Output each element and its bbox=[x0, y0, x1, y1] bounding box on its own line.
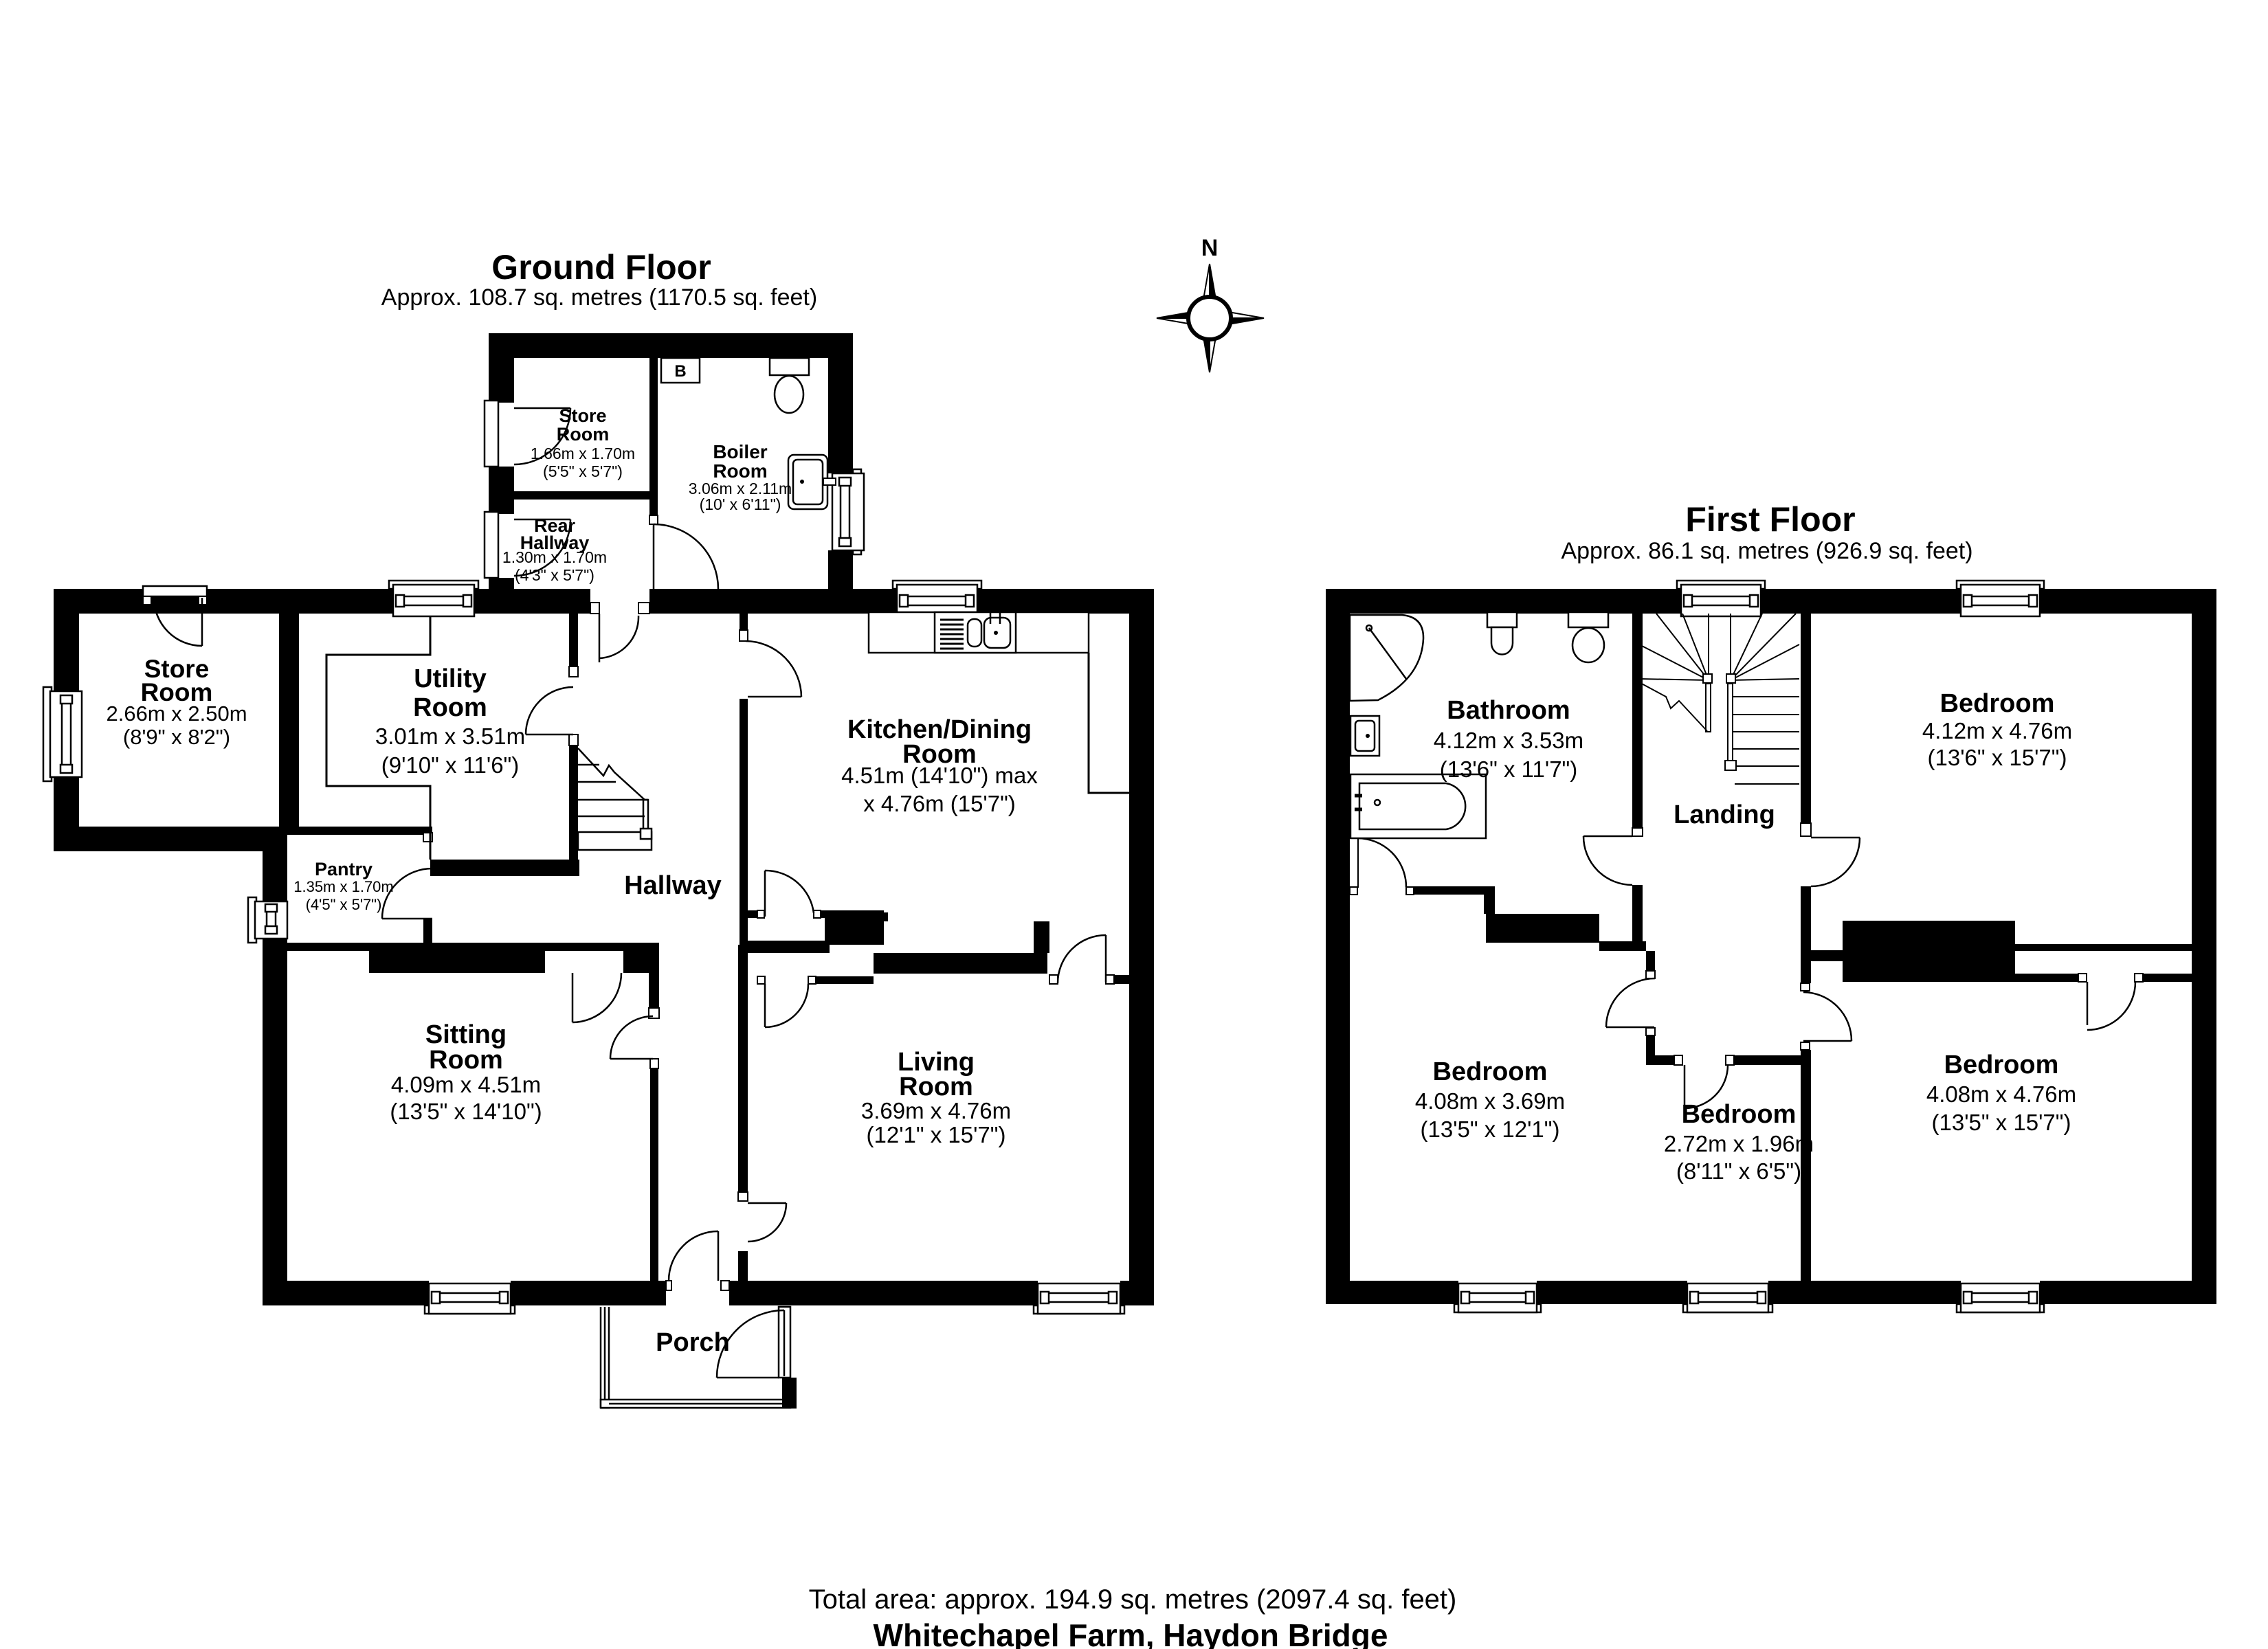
svg-text:Room: Room bbox=[557, 424, 610, 445]
svg-text:4.09m x 4.51m: 4.09m x 4.51m bbox=[391, 1072, 541, 1097]
svg-text:Sitting: Sitting bbox=[425, 1020, 507, 1049]
svg-text:Bedroom: Bedroom bbox=[1944, 1051, 2059, 1079]
svg-text:Landing: Landing bbox=[1674, 800, 1775, 829]
svg-text:Room: Room bbox=[899, 1073, 973, 1101]
svg-text:2.72m x 1.96m: 2.72m x 1.96m bbox=[1664, 1131, 1814, 1156]
svg-text:Pantry: Pantry bbox=[315, 859, 373, 879]
svg-text:Boiler: Boiler bbox=[713, 441, 767, 462]
svg-text:Total area: approx. 194.9 sq.: Total area: approx. 194.9 sq. metres (20… bbox=[809, 1584, 1457, 1615]
svg-text:(13'5" x 15'7"): (13'5" x 15'7") bbox=[1932, 1110, 2071, 1135]
svg-text:3.69m x 4.76m: 3.69m x 4.76m bbox=[861, 1098, 1011, 1123]
svg-text:(9'10" x 11'6"): (9'10" x 11'6") bbox=[381, 752, 520, 778]
svg-text:Room: Room bbox=[429, 1046, 503, 1075]
svg-text:1.35m x 1.70m: 1.35m x 1.70m bbox=[293, 878, 394, 895]
svg-text:Bedroom: Bedroom bbox=[1682, 1100, 1797, 1129]
svg-text:Utility: Utility bbox=[414, 664, 487, 693]
svg-text:(13'5" x 14'10"): (13'5" x 14'10") bbox=[390, 1099, 542, 1124]
svg-text:Bedroom: Bedroom bbox=[1940, 689, 2055, 718]
svg-text:1.66m x 1.70m: 1.66m x 1.70m bbox=[531, 445, 635, 462]
svg-text:Room: Room bbox=[713, 460, 767, 482]
svg-text:(12'1" x 15'7"): (12'1" x 15'7") bbox=[867, 1122, 1006, 1147]
svg-text:(5'5" x 5'7"): (5'5" x 5'7") bbox=[543, 462, 623, 480]
svg-text:Bathroom: Bathroom bbox=[1447, 696, 1570, 725]
svg-text:3.01m x 3.51m: 3.01m x 3.51m bbox=[375, 723, 525, 749]
svg-text:4.12m x 3.53m: 4.12m x 3.53m bbox=[1434, 728, 1583, 753]
svg-text:Room: Room bbox=[413, 693, 487, 722]
svg-text:(13'5" x 12'1"): (13'5" x 12'1") bbox=[1421, 1117, 1560, 1142]
svg-text:Porch: Porch bbox=[656, 1328, 730, 1357]
svg-text:2.66m x 2.50m: 2.66m x 2.50m bbox=[106, 702, 247, 726]
svg-text:(13'6" x 11'7"): (13'6" x 11'7") bbox=[1440, 756, 1578, 782]
svg-text:4.12m x 4.76m: 4.12m x 4.76m bbox=[1922, 718, 2072, 743]
svg-text:4.51m (14'10") max: 4.51m (14'10") max bbox=[841, 763, 1038, 788]
svg-text:(10' x 6'11"): (10' x 6'11") bbox=[700, 495, 781, 513]
svg-text:1.30m x 1.70m: 1.30m x 1.70m bbox=[502, 548, 607, 566]
svg-text:Whitechapel Farm, Haydon Bridg: Whitechapel Farm, Haydon Bridge bbox=[874, 1617, 1388, 1649]
svg-text:(8'9" x 8'2"): (8'9" x 8'2") bbox=[123, 725, 230, 749]
svg-text:x 4.76m (15'7"): x 4.76m (15'7") bbox=[863, 791, 1016, 816]
svg-text:B: B bbox=[674, 362, 686, 381]
svg-text:Ground Floor: Ground Floor bbox=[491, 248, 711, 287]
svg-text:N: N bbox=[1201, 235, 1219, 261]
svg-text:Approx. 86.1 sq. metres (926.9: Approx. 86.1 sq. metres (926.9 sq. feet) bbox=[1561, 538, 1972, 564]
svg-text:(4'5" x 5'7"): (4'5" x 5'7") bbox=[306, 896, 382, 913]
svg-text:(4'3" x 5'7"): (4'3" x 5'7") bbox=[515, 566, 594, 584]
svg-text:4.08m x 4.76m: 4.08m x 4.76m bbox=[1926, 1081, 2076, 1107]
svg-text:(13'6" x 15'7"): (13'6" x 15'7") bbox=[1928, 745, 2067, 770]
svg-text:Bedroom: Bedroom bbox=[1433, 1057, 1548, 1086]
svg-text:Store: Store bbox=[559, 405, 606, 426]
svg-text:Approx. 108.7 sq. metres (1170: Approx. 108.7 sq. metres (1170.5 sq. fee… bbox=[381, 284, 817, 311]
svg-text:Hallway: Hallway bbox=[624, 871, 722, 900]
svg-text:(8'11" x 6'5"): (8'11" x 6'5") bbox=[1676, 1158, 1801, 1184]
svg-text:First Floor: First Floor bbox=[1685, 500, 1855, 539]
svg-text:4.08m x 3.69m: 4.08m x 3.69m bbox=[1415, 1088, 1565, 1114]
